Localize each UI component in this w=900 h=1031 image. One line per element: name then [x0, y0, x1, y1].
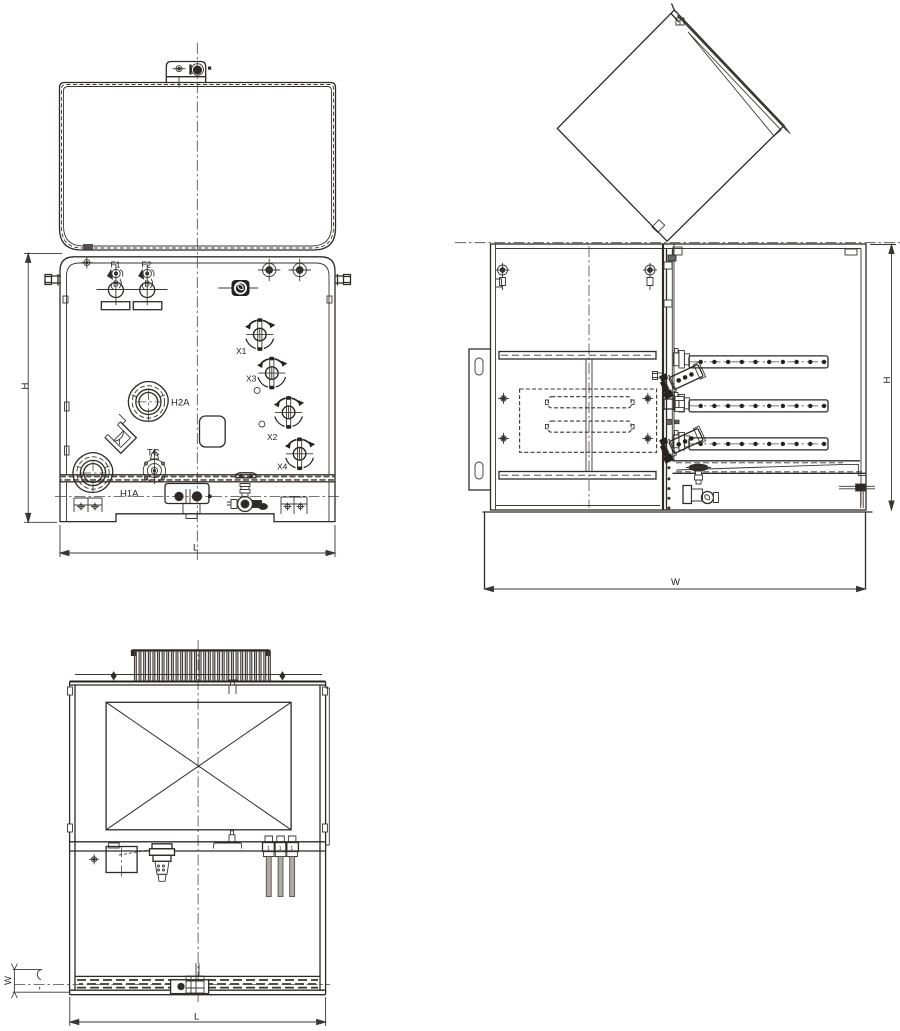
- svg-text:H1A: H1A: [120, 489, 139, 500]
- svg-text:X4: X4: [277, 462, 288, 472]
- svg-text:W: W: [3, 976, 14, 985]
- svg-text:X3: X3: [246, 374, 257, 384]
- svg-text:H: H: [20, 382, 31, 389]
- svg-text:F2: F2: [142, 260, 152, 270]
- svg-text:X1: X1: [236, 346, 247, 356]
- svg-text:X2: X2: [267, 432, 278, 442]
- svg-text:TC: TC: [147, 448, 160, 459]
- svg-text:1: 1: [267, 846, 270, 852]
- svg-text:L: L: [193, 543, 198, 554]
- svg-text:H2A: H2A: [171, 398, 190, 409]
- svg-text:W: W: [671, 577, 680, 588]
- svg-text:H: H: [882, 376, 893, 383]
- svg-text:L: L: [194, 1012, 199, 1023]
